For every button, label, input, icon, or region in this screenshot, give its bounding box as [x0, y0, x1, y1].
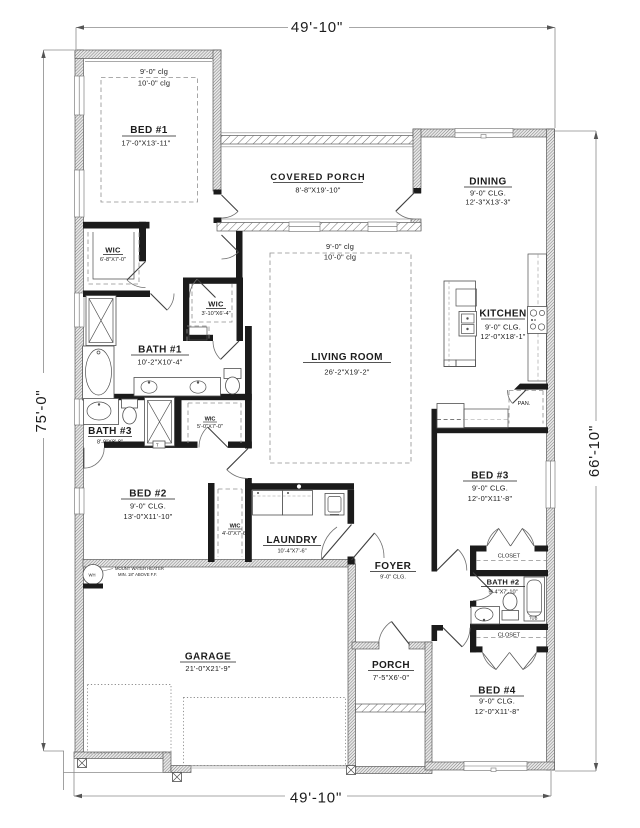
svg-text:MIN. 18" ABOVE F.F.: MIN. 18" ABOVE F.F.	[118, 572, 157, 577]
svg-text:9'-0" CLG.: 9'-0" CLG.	[470, 189, 506, 198]
svg-text:WIC: WIC	[205, 417, 216, 423]
svg-text:9'-0" CLG.: 9'-0" CLG.	[472, 484, 508, 493]
svg-text:12'-0"X18'-1": 12'-0"X18'-1"	[480, 332, 525, 341]
svg-text:DINING: DINING	[469, 177, 506, 188]
svg-text:FOYER: FOYER	[375, 561, 412, 572]
svg-text:CLOSET: CLOSET	[498, 633, 521, 639]
svg-text:9'-0" CLG.: 9'-0" CLG.	[130, 502, 166, 511]
svg-text:26'-2"X19'-2": 26'-2"X19'-2"	[324, 368, 369, 377]
svg-text:8'-0"X8'-8": 8'-0"X8'-8"	[97, 440, 123, 446]
svg-text:LAUNDRY: LAUNDRY	[266, 535, 317, 546]
svg-text:75'-0": 75'-0"	[33, 389, 50, 432]
svg-text:WIC: WIC	[230, 524, 241, 530]
svg-text:3'-10"X6'-4": 3'-10"X6'-4"	[201, 311, 230, 317]
svg-text:13'-0"X11'-10": 13'-0"X11'-10"	[124, 512, 173, 521]
svg-text:BED #1: BED #1	[130, 125, 167, 136]
svg-text:66'-10": 66'-10"	[586, 425, 603, 477]
svg-text:LIVING ROOM: LIVING ROOM	[311, 352, 383, 363]
svg-text:17'-0"X13'-11": 17'-0"X13'-11"	[122, 139, 171, 148]
svg-text:9'-0" clg: 9'-0" clg	[140, 67, 168, 76]
svg-text:BATH #1: BATH #1	[138, 345, 182, 356]
svg-text:9'-0" CLG.: 9'-0" CLG.	[479, 697, 515, 706]
svg-text:BED #2: BED #2	[129, 489, 166, 500]
svg-text:MOUNT WATER HEATER: MOUNT WATER HEATER	[115, 566, 164, 571]
svg-text:T: T	[156, 443, 159, 448]
svg-text:49'-10": 49'-10"	[290, 790, 342, 807]
svg-text:WH: WH	[89, 573, 96, 578]
svg-text:6'-8"X7'-0": 6'-8"X7'-0"	[100, 257, 126, 263]
svg-text:9'-0" CLG.: 9'-0" CLG.	[485, 323, 521, 332]
svg-text:12'-0"X11'-8": 12'-0"X11'-8"	[475, 707, 520, 716]
svg-text:12'-3"X13'-3": 12'-3"X13'-3"	[465, 198, 510, 207]
svg-text:10'-0" clg: 10'-0" clg	[324, 253, 356, 262]
svg-text:49'-10": 49'-10"	[291, 19, 343, 36]
svg-text:9'-0" CLG.: 9'-0" CLG.	[380, 575, 406, 581]
svg-text:8'-8"X19'-10": 8'-8"X19'-10"	[295, 186, 340, 195]
svg-text:BATH #3: BATH #3	[88, 426, 132, 437]
svg-text:5'-0"X7'-0": 5'-0"X7'-0"	[197, 424, 223, 430]
svg-text:BATH #2: BATH #2	[487, 578, 520, 587]
svg-text:10'-0" clg: 10'-0" clg	[138, 79, 170, 88]
svg-text:PORCH: PORCH	[372, 660, 410, 671]
svg-text:4'-0"X7'-6": 4'-0"X7'-6"	[222, 531, 248, 537]
svg-text:KITCHEN: KITCHEN	[479, 309, 526, 320]
svg-text:CLOSET: CLOSET	[498, 554, 521, 560]
svg-text:BED #4: BED #4	[478, 686, 515, 697]
svg-text:5'-4"X7'-10": 5'-4"X7'-10"	[488, 590, 517, 596]
svg-text:21'-0"X21'-9": 21'-0"X21'-9"	[185, 664, 230, 673]
svg-text:BED #3: BED #3	[471, 471, 508, 482]
svg-text:WIC: WIC	[105, 246, 121, 255]
svg-text:PAN.: PAN.	[518, 401, 531, 407]
svg-text:7'-5"X6'-0": 7'-5"X6'-0"	[373, 673, 410, 682]
svg-text:9'-0" clg: 9'-0" clg	[326, 242, 354, 251]
svg-text:10'-4"X7'-6": 10'-4"X7'-6"	[277, 549, 306, 555]
svg-text:10'-2"X10'-4": 10'-2"X10'-4"	[137, 358, 182, 367]
svg-text:GARAGE: GARAGE	[185, 652, 231, 663]
svg-text:COVERED PORCH: COVERED PORCH	[270, 172, 365, 182]
svg-text:WIC: WIC	[208, 300, 224, 309]
svg-text:12'-0"X11'-8": 12'-0"X11'-8"	[468, 494, 513, 503]
svg-text:TUB: TUB	[529, 616, 538, 621]
